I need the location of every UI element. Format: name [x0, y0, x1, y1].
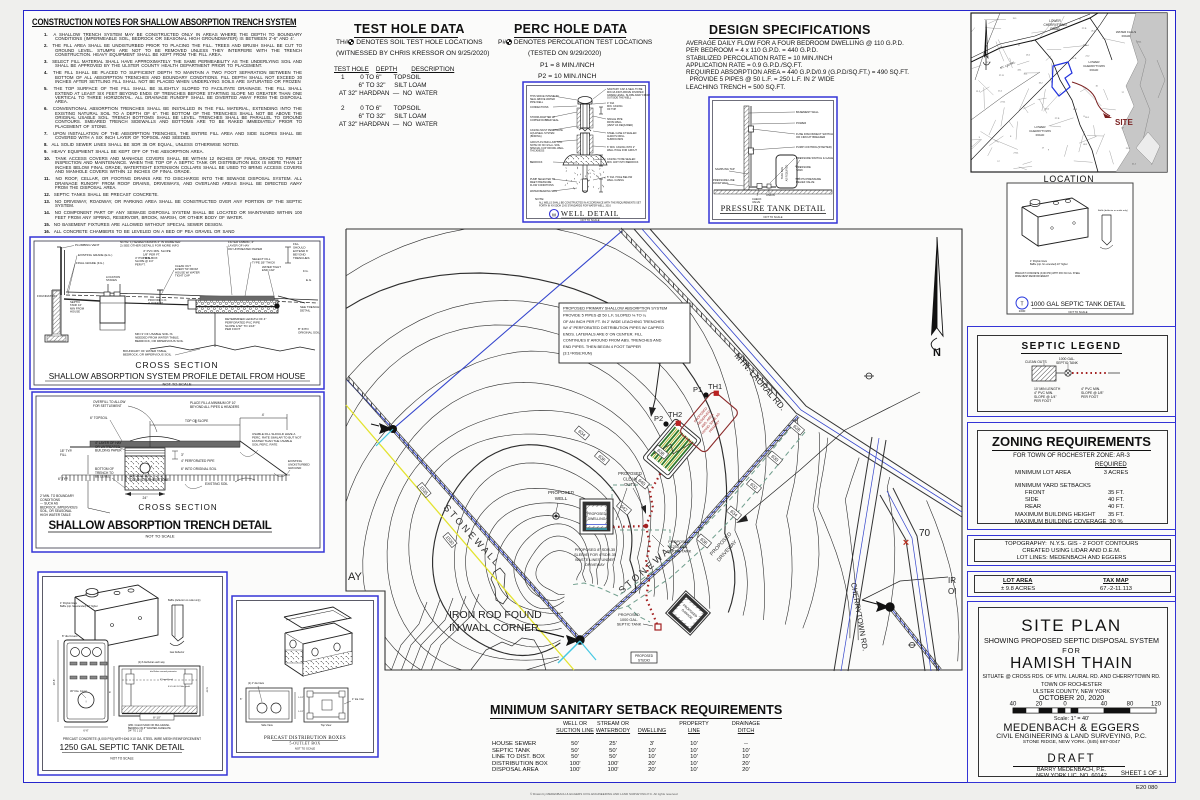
svg-text:3/4" TO 1 1/2": 3/4" TO 1 1/2" — [128, 730, 143, 733]
svg-text:NOT TO SCALE: NOT TO SCALE — [162, 382, 191, 387]
svg-text:ROAD: ROAD — [1036, 133, 1046, 137]
svg-text:(VENT AS REQUIRED): (VENT AS REQUIRED) — [607, 124, 633, 127]
svg-text:WASTE LINES UNDER: WASTE LINES UNDER — [575, 558, 615, 562]
svg-text:6'-6": 6'-6" — [83, 729, 88, 733]
svg-text:OF TOP: OF TOP — [607, 108, 617, 111]
svg-text:GROUND: GROUND — [288, 466, 302, 470]
svg-text:PRECAST CONCRETE (4,000 PSI) W: PRECAST CONCRETE (4,000 PSI) WITH 6X6 X1… — [63, 737, 201, 741]
svg-text:5'-5": 5'-5" — [205, 687, 209, 692]
svg-text:6": 6" — [240, 698, 242, 701]
svg-text:TIGHT CAP: TIGHT CAP — [175, 274, 190, 278]
svg-text:SLEEVE FOR 4"SDR-35: SLEEVE FOR 4"SDR-35 — [574, 553, 616, 557]
svg-text:PROVIDE 5 PIPES @ 50 L.F, SLOP: PROVIDE 5 PIPES @ 50 L.F, SLOPED ⅛ TO ¼ — [563, 313, 647, 318]
svg-text:N: N — [933, 347, 941, 359]
svg-text:NOT TO SCALE: NOT TO SCALE — [764, 215, 783, 219]
svg-text:PRESSURE SWITCH & GAGE: PRESSURE SWITCH & GAGE — [796, 156, 833, 160]
svg-text:P2: P2 — [654, 414, 663, 423]
svg-text:NOTE:: NOTE: — [535, 197, 544, 201]
svg-text:TOP OF SLOPE: TOP OF SLOPE — [185, 419, 208, 423]
svg-text:4" dia. Inlet: 4" dia. Inlet — [352, 698, 364, 701]
svg-text:NOT TO SCALE: NOT TO SCALE — [581, 218, 600, 222]
svg-text:WELL: WELL — [555, 496, 568, 501]
svg-text:PUMP CONTROL(STARTER): PUMP CONTROL(STARTER) — [796, 145, 832, 149]
svg-text:CROSS SECTION: CROSS SECTION — [138, 503, 217, 512]
svg-text:(2) 8 dia Rebar each way: (2) 8 dia Rebar each way — [138, 661, 166, 664]
svg-text:NOT TO SCALE: NOT TO SCALE — [1069, 310, 1088, 314]
svg-text:STAKES: STAKES — [106, 278, 117, 282]
svg-text:ENDS. LATERALS ARE 6' ON CE: ENDS. LATERALS ARE 6' ON CENTER. FILL — [563, 331, 643, 336]
svg-text:PROPOSED: PROPOSED — [618, 613, 640, 617]
svg-text:4' OVER 50': 4' OVER 50' — [148, 301, 164, 305]
svg-text:DRIVEWAY: DRIVEWAY — [585, 563, 605, 567]
svg-text:COPPER RUBBER SEAL: COPPER RUBBER SEAL — [530, 119, 559, 122]
svg-text:ORIGINAL SOIL: ORIGINAL SOIL — [298, 330, 320, 334]
svg-text:6" INTO ORIGINAL SOIL: 6" INTO ORIGINAL SOIL — [181, 467, 217, 471]
svg-text:BEDROCK: BEDROCK — [530, 161, 543, 164]
svg-text:CLEAN CRUSHED STONE: CLEAN CRUSHED STONE — [130, 478, 169, 482]
svg-text:TYPE 1B" THICK: TYPE 1B" THICK — [252, 260, 275, 264]
svg-text:HIGH WATER TABLE: HIGH WATER TABLE — [40, 513, 71, 517]
svg-text:6" TOPSOIL: 6" TOPSOIL — [90, 416, 108, 420]
svg-text:BEDROCK, OR IMPERVIOUS SOIL: BEDROCK, OR IMPERVIOUS SOIL — [123, 352, 172, 356]
svg-text:1-1/2": 1-1/2" — [298, 697, 304, 699]
svg-text:NOT TO SCALE: NOT TO SCALE — [145, 534, 174, 539]
svg-text:4" liquid level: 4" liquid level — [160, 679, 173, 681]
svg-text:SHALLOW ABSORPTION TRENCH DETA: SHALLOW ABSORPTION TRENCH DETAIL — [49, 520, 272, 532]
svg-text:FORTH IN NYSDOH 10-D STANDARDS: FORTH IN NYSDOH 10-D STANDARDS FOR WATER… — [539, 204, 611, 207]
svg-text:×: × — [903, 537, 909, 549]
svg-text:1000 GAL SEPTIC TANK DETAIL: 1000 GAL SEPTIC TANK DETAIL — [1030, 301, 1126, 308]
svg-text:BE LEVEL: BE LEVEL — [95, 475, 110, 479]
svg-text:(2) 4" dia Inlets: (2) 4" dia Inlets — [248, 682, 265, 685]
svg-text:CLEAN: CLEAN — [623, 477, 637, 482]
svg-text:1000 GAL.: 1000 GAL. — [620, 618, 638, 622]
svg-text:HOUSE: HOUSE — [70, 310, 80, 314]
svg-text:TRENCHES: TRENCHES — [293, 256, 310, 260]
svg-text:PIPE WELL: PIPE WELL — [530, 101, 544, 104]
svg-text:(3:1=RISE:RUN): (3:1=RISE:RUN) — [563, 350, 593, 355]
svg-text:WELL CASING: WELL CASING — [607, 179, 624, 182]
svg-text:SOIL PERC. RATE: SOIL PERC. RATE — [252, 443, 277, 447]
svg-text:RELIEF VALVE: RELIEF VALVE — [796, 180, 815, 184]
svg-text:1250 GAL SEPTIC TANK DETAIL: 1250 GAL SEPTIC TANK DETAIL — [60, 742, 185, 752]
svg-text:ROAD: ROAD — [1050, 27, 1060, 31]
svg-text:4" PERFORATED PIPE: 4" PERFORATED PIPE — [181, 459, 215, 463]
svg-text:Baffle (opt. for extended) 10": Baffle (opt. for extended) 10" higher — [60, 605, 98, 608]
svg-text:NOT TO SCALE: NOT TO SCALE — [110, 757, 133, 761]
svg-text:P1: P1 — [693, 385, 702, 394]
svg-text:THICKNESS: THICKNESS — [530, 150, 545, 153]
svg-text:WIRE MESH REINFORCEMENT: WIRE MESH REINFORCEMENT — [1015, 276, 1050, 278]
svg-text:NOT TO SCALE: NOT TO SCALE — [295, 747, 315, 751]
svg-text:IN WALL CORNER: IN WALL CORNER — [449, 622, 539, 634]
svg-text:F.G.: F.G. — [303, 269, 309, 273]
svg-text:PLUMBING VENT: PLUMBING VENT — [75, 243, 100, 247]
svg-text:WELL DETAIL: WELL DETAIL — [561, 209, 619, 218]
svg-text:FROM WELL: FROM WELL — [713, 181, 729, 185]
svg-text:PER FOOT: PER FOOT — [225, 327, 241, 331]
svg-text:(BORING): (BORING) — [530, 135, 542, 138]
svg-text:PROPOSED: PROPOSED — [618, 471, 642, 476]
svg-text:10'-6": 10'-6" — [52, 679, 56, 686]
svg-text:OR CIRCUIT BREAKER: OR CIRCUIT BREAKER — [796, 135, 825, 139]
svg-text:SHALLOW ABSORPTION SYSTEM P: SHALLOW ABSORPTION SYSTEM PROFILE DETAIL… — [49, 372, 306, 381]
svg-text:TH1: TH1 — [708, 382, 722, 391]
svg-text:SAMPLING TAP: SAMPLING TAP — [715, 167, 735, 171]
svg-text:OUTS: OUTS — [624, 482, 636, 487]
svg-text:OUTSIDE THE WELL: OUTSIDE THE WELL — [607, 97, 632, 100]
svg-text:STUDIO: STUDIO — [638, 659, 651, 663]
svg-text:BEDROCK, OR IMPERVIOUS SOIL: BEDROCK, OR IMPERVIOUS SOIL — [135, 339, 184, 343]
svg-text:SURROUNDS: SURROUNDS — [607, 138, 623, 141]
svg-text:Baffle (deflector on outlet on: Baffle (deflector on outlet only) — [168, 599, 201, 602]
svg-text:E.G.: E.G. — [306, 278, 312, 282]
svg-text:8" dia Covers: 8" dia Covers — [62, 634, 78, 638]
svg-text:FOUNDATION: FOUNDATION — [37, 294, 57, 298]
svg-text:ROAD: ROAD — [1122, 34, 1132, 38]
svg-text:FINAL GRADE (F.G.): FINAL GRADE (F.G.) — [76, 261, 104, 265]
svg-text:Gas Deflector: Gas Deflector — [170, 651, 185, 654]
svg-text:DWELLING: DWELLING — [588, 517, 606, 521]
svg-text:5-OUTLET BOX: 5-OUTLET BOX — [289, 742, 320, 746]
svg-text:AY: AY — [348, 571, 363, 583]
svg-text:END PIPES. THEN BEGIN 4 FOOT T: END PIPES. THEN BEGIN 4 FOOT TAPPER — [563, 344, 641, 349]
svg-text:Baffle (opt. for extended) 10": Baffle (opt. for extended) 10" higher — [1030, 263, 1068, 266]
svg-text:6" TYP.: 6" TYP. — [58, 477, 69, 481]
svg-text:DETAIL: DETAIL — [300, 308, 311, 312]
svg-text:PROPOSED 8" SDR-35: PROPOSED 8" SDR-35 — [575, 548, 616, 552]
svg-text:PROPOSED: PROPOSED — [668, 540, 690, 544]
svg-text:BUILDING PAPER: BUILDING PAPER — [95, 449, 122, 453]
svg-text:W/ 4" PERFORATED DISTRIBUTION: W/ 4" PERFORATED DISTRIBUTION PIPES W/ C… — [563, 325, 664, 330]
svg-text:BEYOND ALL PIPES & HEADERS: BEYOND ALL PIPES & HEADERS — [190, 405, 239, 409]
svg-text:SITE: SITE — [1115, 118, 1133, 127]
svg-text:MIN. 40FT INTO BEDROCK: MIN. 40FT INTO BEDROCK — [607, 161, 639, 164]
svg-text:Top View: Top View — [321, 723, 332, 727]
svg-text:ROAD: ROAD — [1090, 68, 1100, 72]
svg-text:PRECAST CONCRETE (3,000 PSI) W: PRECAST CONCRETE (3,000 PSI) WITH 6X6 X1… — [1015, 272, 1081, 275]
svg-text:Baffle (deflector on outlet on: Baffle (deflector on outlet only) — [1098, 209, 1128, 212]
svg-text:OR UNTREATED PAPER: OR UNTREATED PAPER — [228, 247, 263, 251]
svg-text:PER FT.: PER FT. — [135, 262, 146, 266]
svg-text:1250 GAL: 1250 GAL — [670, 545, 687, 549]
svg-text:T: T — [1020, 302, 1023, 308]
svg-text:EXISTING SOIL: EXISTING SOIL — [205, 482, 228, 486]
svg-text:FOR SETTLEMENT: FOR SETTLEMENT — [93, 404, 122, 408]
svg-text:1000: 1000 — [1019, 309, 1026, 313]
svg-text:4': 4' — [262, 413, 265, 417]
svg-text:TH2: TH2 — [668, 410, 682, 419]
svg-text:PROPOSED: PROPOSED — [548, 490, 575, 495]
svg-text:SEPTIC TANK: SEPTIC TANK — [617, 623, 642, 627]
svg-text:PROPOSED PRIMARY SHALLOW ABSOR: PROPOSED PRIMARY SHALLOW ABSORPTION SYST… — [563, 306, 667, 311]
svg-text:IRON ROD FOUND: IRON ROD FOUND — [449, 609, 542, 621]
svg-text:IR: IR — [948, 576, 956, 585]
svg-text:OF AN INCH PER FT. IN 2' WIDE: OF AN INCH PER FT. IN 2' WIDE LEACHING T… — [563, 319, 665, 324]
svg-text:TANK SIZE: TANK SIZE — [781, 167, 784, 180]
svg-text:EXISTING GRADE (E.G.): EXISTING GRADE (E.G.) — [78, 253, 112, 257]
svg-text:CONTINUES 6' AROUND FROM ABS: CONTINUES 6' AROUND FROM ABS. TRENCHES A… — [563, 338, 662, 343]
svg-text:6'-6"x10'-10' Min. yield: 6'-6"x10'-10' Min. yield — [168, 686, 191, 688]
svg-text:WATER BEARING SOIL: WATER BEARING SOIL — [530, 190, 558, 193]
svg-text:8'-10": 8'-10" — [153, 716, 161, 720]
svg-text:2) SEE OTHER DETAILS FOR MORE: 2) SEE OTHER DETAILS FOR MORE INFO — [120, 244, 180, 248]
svg-text:PROPOSED: PROPOSED — [587, 512, 607, 516]
svg-text:TANK: TANK — [796, 168, 803, 172]
svg-text:WELL HOLE FOR GROUT: WELL HOLE FOR GROUT — [607, 149, 637, 152]
svg-text:dia Rebar around perimeter: dia Rebar around perimeter — [150, 670, 177, 673]
svg-text:OI: OI — [948, 587, 956, 596]
svg-text:PROPOSED: PROPOSED — [635, 654, 654, 658]
svg-text:FLOW CONDITIONS: FLOW CONDITIONS — [530, 184, 554, 187]
svg-text:24": 24" — [143, 496, 149, 500]
svg-text:Side View: Side View — [261, 723, 273, 727]
svg-text:CHERRYTOWN RD.: CHERRYTOWN RD. — [849, 582, 870, 652]
svg-text:PRESSURE TANK DETAIL: PRESSURE TANK DETAIL — [721, 204, 826, 213]
svg-text:SEPTIC TANK: SEPTIC TANK — [667, 550, 692, 554]
svg-text:30" Dia. Cover: 30" Dia. Cover — [70, 689, 87, 693]
svg-text:3": 3" — [181, 453, 184, 457]
svg-text:UNION: UNION — [766, 193, 775, 197]
svg-text:CONNECTIONS: CONNECTIONS — [530, 106, 549, 109]
svg-text:FILL: FILL — [60, 453, 67, 457]
svg-text:70: 70 — [919, 528, 931, 539]
svg-text:BASEMENT WALL: BASEMENT WALL — [796, 110, 819, 114]
svg-text:POWER: POWER — [796, 121, 806, 125]
svg-text:1-1/2": 1-1/2" — [298, 711, 304, 713]
svg-text:CROSS SECTION: CROSS SECTION — [135, 360, 218, 370]
